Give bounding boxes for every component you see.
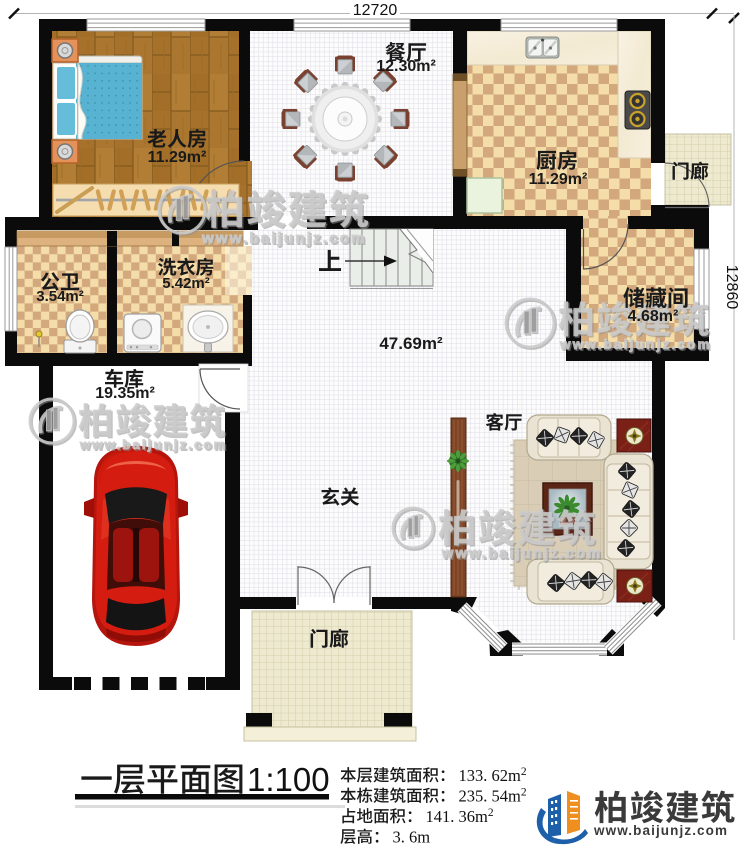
svg-text:12860: 12860: [723, 265, 740, 310]
svg-text:141. 36m2: 141. 36m2: [426, 807, 494, 826]
svg-text:www.baijunjz.com: www.baijunjz.com: [559, 337, 712, 352]
svg-text:www.baijunjz.com: www.baijunjz.com: [201, 230, 367, 247]
svg-text:19.35m²: 19.35m²: [95, 385, 155, 402]
svg-text:133. 62m2: 133. 62m2: [459, 766, 527, 785]
svg-text:1:100: 1:100: [247, 761, 330, 798]
svg-text:www.baijunjz.com: www.baijunjz.com: [441, 546, 602, 562]
svg-text:5.42m²: 5.42m²: [162, 275, 210, 292]
svg-text:3. 6m: 3. 6m: [393, 828, 431, 847]
svg-text:12720: 12720: [353, 2, 398, 19]
svg-text:11.29m²: 11.29m²: [148, 149, 207, 166]
svg-text:www.baijunjz.com: www.baijunjz.com: [593, 823, 728, 838]
svg-text:www.baijunjz.com: www.baijunjz.com: [79, 437, 227, 452]
svg-text:235. 54m2: 235. 54m2: [459, 787, 527, 806]
svg-text:11.29m²: 11.29m²: [529, 171, 588, 188]
svg-text:12.30m²: 12.30m²: [376, 58, 436, 75]
svg-text:3.54m²: 3.54m²: [36, 288, 84, 305]
svg-text:4.68m²: 4.68m²: [628, 308, 679, 325]
svg-text:47.69m²: 47.69m²: [379, 334, 443, 353]
